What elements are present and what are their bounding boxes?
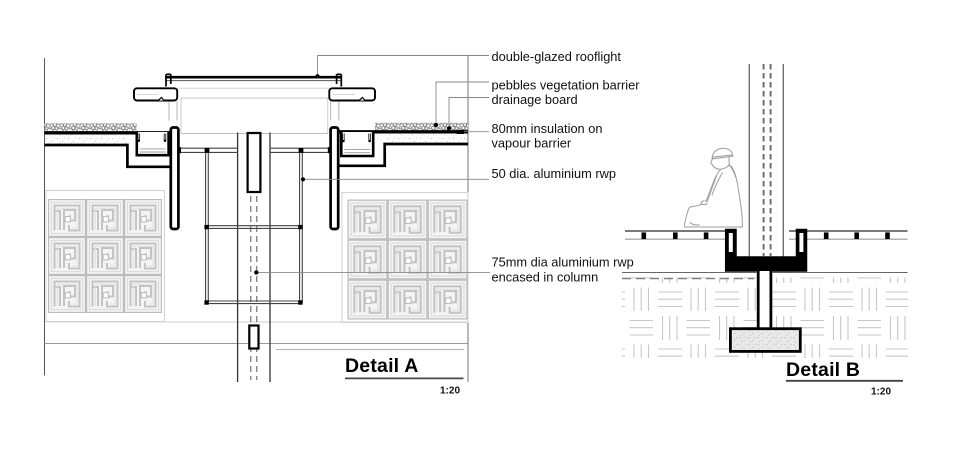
svg-text:1:20: 1:20	[871, 387, 891, 398]
svg-text:1:20: 1:20	[440, 386, 460, 397]
svg-text:75mm dia aluminium rwp: 75mm dia aluminium rwp	[492, 255, 634, 270]
svg-text:Detail B: Detail B	[786, 359, 860, 381]
svg-text:double-glazed rooflight: double-glazed rooflight	[492, 49, 622, 64]
svg-text:vapour barrier: vapour barrier	[492, 136, 572, 151]
svg-text:Detail A: Detail A	[345, 355, 418, 377]
svg-text:50 dia. aluminium rwp: 50 dia. aluminium rwp	[492, 166, 616, 181]
svg-text:drainage board: drainage board	[492, 92, 578, 107]
svg-text:pebbles vegetation barrier: pebbles vegetation barrier	[492, 78, 641, 93]
svg-text:encased in column: encased in column	[492, 270, 599, 285]
svg-text:80mm insulation on: 80mm insulation on	[492, 121, 603, 136]
